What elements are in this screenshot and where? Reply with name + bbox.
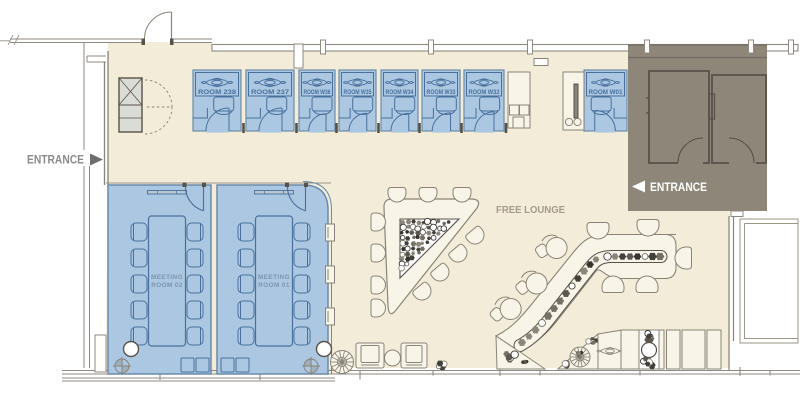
svg-text:ROOM 238: ROOM 238 <box>198 89 236 96</box>
svg-text:ROOM W32: ROOM W32 <box>469 89 500 96</box>
svg-text:ENTRANCE: ENTRANCE <box>27 155 84 167</box>
svg-text:ROOM W33: ROOM W33 <box>427 89 456 96</box>
svg-text:MEETING: MEETING <box>151 274 183 281</box>
svg-text:ROOM W35: ROOM W35 <box>344 89 372 96</box>
svg-text:ROOM W34: ROOM W34 <box>386 89 414 96</box>
svg-text:ROOM 237: ROOM 237 <box>251 89 289 96</box>
svg-text:ROOM W01: ROOM W01 <box>589 89 623 96</box>
svg-text:ENTRANCE: ENTRANCE <box>650 182 707 194</box>
svg-text:ROOM W36: ROOM W36 <box>304 89 331 96</box>
svg-text:ROOM 01: ROOM 01 <box>258 282 290 289</box>
svg-text:FREE LOUNGE: FREE LOUNGE <box>496 205 565 216</box>
svg-text:ROOM 02: ROOM 02 <box>151 282 183 289</box>
svg-text:MEETING: MEETING <box>258 274 290 281</box>
